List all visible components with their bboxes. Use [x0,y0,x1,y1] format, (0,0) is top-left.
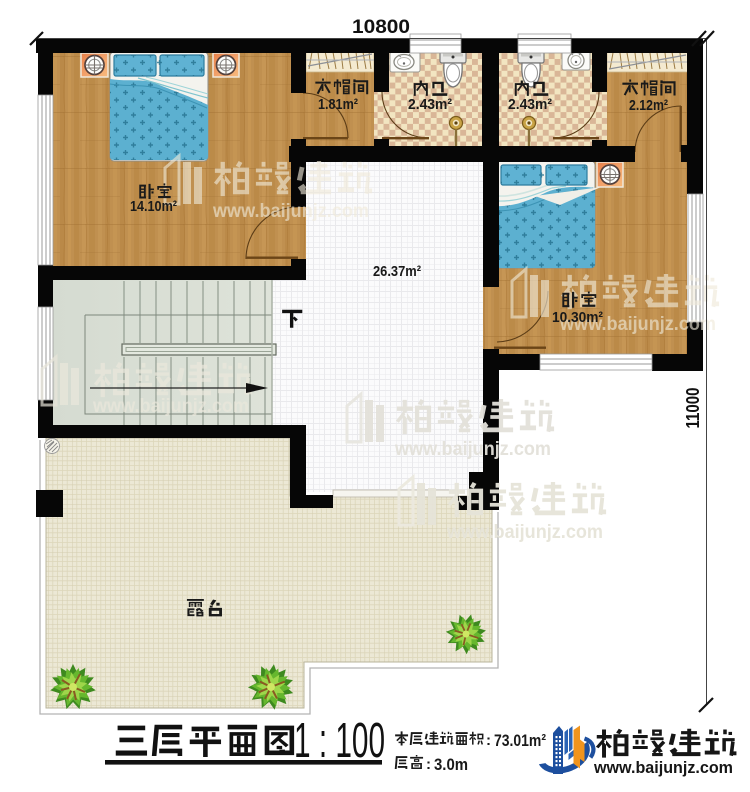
svg-text:73.01m²: 73.01m² [494,731,546,750]
svg-text:www.baijunjz.com: www.baijunjz.com [446,522,603,543]
svg-text:10800: 10800 [352,17,410,38]
svg-text:14.10m²: 14.10m² [130,198,177,215]
svg-text:www.baijunjz.com: www.baijunjz.com [92,396,249,417]
svg-text:www.baijunjz.com: www.baijunjz.com [212,201,369,222]
svg-text:1.81m²: 1.81m² [318,96,358,113]
svg-text::: : [486,732,491,749]
svg-text:10.30m²: 10.30m² [552,309,603,326]
svg-text:3.0m: 3.0m [434,755,468,774]
svg-text:2.43m²: 2.43m² [408,96,452,113]
svg-text:1 : 100: 1 : 100 [294,714,385,768]
svg-text:www.baijunjz.com: www.baijunjz.com [394,439,551,460]
svg-text:2.43m²: 2.43m² [508,96,552,113]
svg-text:11000: 11000 [683,388,703,429]
svg-text:2.12m²: 2.12m² [629,97,668,114]
svg-text:www.baijunjz.com: www.baijunjz.com [593,759,733,777]
svg-text::: : [426,756,431,773]
svg-text:26.37m²: 26.37m² [373,263,421,280]
